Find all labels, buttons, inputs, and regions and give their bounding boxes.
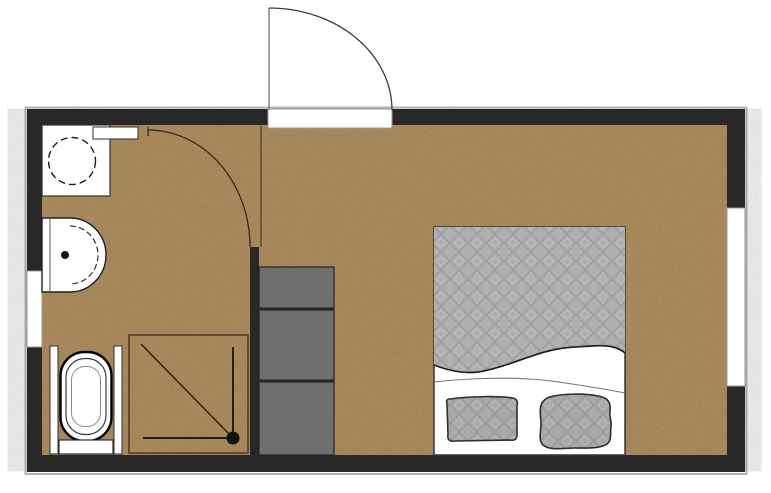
shower-drain xyxy=(227,432,240,445)
wall-left-lower xyxy=(27,347,42,455)
wall-right-lower xyxy=(727,386,745,455)
wall-top-left xyxy=(27,109,268,125)
pillow-right xyxy=(540,394,611,449)
wall-bottom xyxy=(27,455,745,472)
wardrobe xyxy=(259,267,334,455)
entrance-door-opening xyxy=(268,109,392,128)
pillow-left xyxy=(447,397,518,442)
wall-left-upper xyxy=(27,125,42,271)
wall-shelf xyxy=(93,127,138,139)
countertop-basin xyxy=(42,218,106,292)
toilet-bowl-outer xyxy=(61,352,112,441)
window-left xyxy=(27,271,42,347)
vanity-counter xyxy=(42,218,106,292)
toilet-tank xyxy=(59,440,113,454)
wardrobe-body xyxy=(259,267,334,455)
wall-top-right xyxy=(392,109,745,125)
partition-wall xyxy=(250,247,259,455)
toilet-rail-right xyxy=(114,346,122,454)
double-bed xyxy=(434,227,625,455)
window-right xyxy=(727,208,745,386)
wall-right-upper xyxy=(727,125,745,208)
floor-plan xyxy=(0,0,771,493)
cabinet-basin-circle xyxy=(49,138,96,185)
floor-plan-canvas xyxy=(0,0,771,493)
toilet-rail-left xyxy=(50,346,58,454)
basin-drain xyxy=(61,251,69,259)
